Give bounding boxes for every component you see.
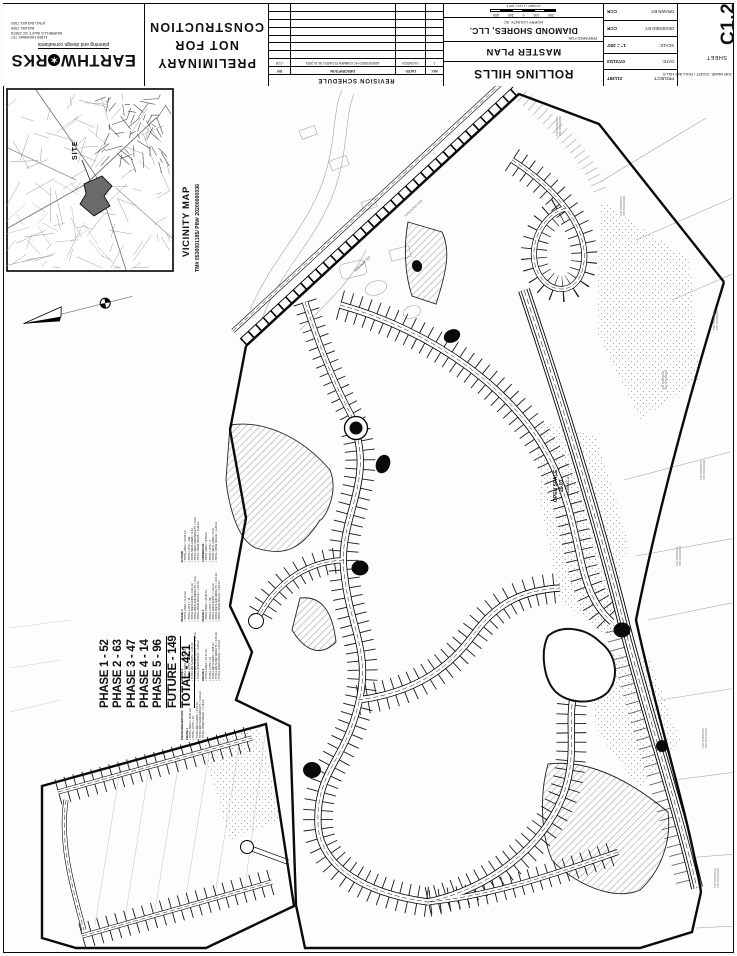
railroad-corridor (233, 84, 519, 345)
firm-name-left: EARTHW (60, 50, 135, 69)
phase-line: PHASE 4 - 14 (139, 636, 152, 708)
sheet-word: SHEET (706, 54, 727, 60)
preliminary-stamp: PRELIMINARY NOT FOR CONSTRUCTION (144, 4, 268, 86)
firm-logo: EARTHW✶RKS (11, 50, 136, 69)
revision-empty-row (269, 42, 443, 50)
revision-empty-row (269, 27, 443, 35)
plan-sheet: VICINITY MAP TM# 0530001185/ PIN# 202000… (0, 0, 737, 956)
adjacent-owner-label: TM# 0530000000PIN# 0000000000 (556, 116, 563, 136)
designed-by-value: CCR (607, 26, 617, 31)
open-space-label: OPEN SPACE 20.03 18.68 AC ± (553, 470, 570, 502)
breakdown-section: PHASE 2• TOTAL AREA = 18.94 AC• TOTAL LO… (181, 627, 201, 681)
scale-tick: 0 (523, 14, 525, 18)
phase-line: PHASE 5 - 96 (152, 636, 165, 708)
adjacent-owner-label: TM# 0530000000PIN# 0000000000 (620, 196, 627, 216)
plan-type: MASTER PLAN (486, 46, 561, 57)
graphic-scale: 200 100 0 200 400 ( IN FEET ) 1 inch = 2… (444, 4, 603, 18)
site-label: SITE (72, 140, 79, 160)
rev-by: CCR (269, 59, 290, 66)
phase-line-future: FUTURE - 149 (166, 636, 180, 708)
revision-empty-row (269, 19, 443, 27)
project-title-cell: ROLLING HILLS MASTER PLAN PREPARED FOR: … (443, 4, 603, 86)
adjacent-owner-label: TM# 0530000000PIN# 0000000000 (713, 310, 720, 330)
breakdown-section: PHASE 3• TOTAL AREA = 15.27 AC• TOTAL LO… (202, 627, 222, 681)
job-name: JOB NAME: 21139T / ROLLING HILLS (604, 72, 732, 77)
col-by: BY (269, 67, 290, 74)
road-casings (58, 160, 618, 936)
col-no: NO. (425, 67, 443, 74)
revision-schedule-title: REVISION SCHEDULE (269, 74, 443, 86)
breakdown-section: FUTURE• TOTAL AREA = 53.04 AC• TOTAL LOT… (181, 508, 201, 562)
client-name: DIAMOND SHORES, LLC. (469, 26, 577, 36)
scale-bar (491, 9, 557, 13)
open-space-area: 18.68 AC ± (566, 470, 571, 502)
road-centerlines (58, 160, 618, 936)
date-label: DATE: (662, 59, 674, 64)
phase-breakdown-notes: PHASE BREAKDOWN:PHASE 1• TOTAL AREA = 16… (181, 508, 239, 740)
road-surfaces (58, 160, 618, 936)
adjacent-owner-label: TM# 0530000000PIN# 0000000000 (676, 546, 683, 566)
globe-icon: ✶ (48, 54, 60, 66)
designed-by-label: DESIGNED BY: (644, 26, 674, 31)
revision-row: 1 01/29/2024 ADDRESSED HC COMMENTS DATED… (269, 58, 443, 66)
prepared-for-label: PREPARED FOR: (568, 36, 597, 40)
adjacent-owner-label: TM# 0530000000PIN# 0000000000 (662, 370, 669, 390)
revision-empty-row (269, 35, 443, 43)
scale-value: 1" = 200' (607, 43, 626, 48)
col-date: DATE: (395, 67, 425, 74)
scale-tick: 200 (508, 14, 514, 18)
revision-empty-row (269, 50, 443, 58)
county: HORRY COUNTY, SC (504, 20, 544, 25)
adjacent-owner-label: TM# 0530000000PIN# 0000000000 (700, 460, 707, 480)
breakdown-section: COMMERCIAL• TOTAL AREA = 8.55 AC• TOTAL … (202, 508, 218, 562)
sheet-number: C1.2 (718, 3, 737, 45)
col-description: DESCRIPTION (290, 67, 395, 74)
firm-tagline: planning and design consultants (38, 41, 109, 49)
revision-schedule: REVISION SCHEDULE NO. DATE: DESCRIPTION … (268, 4, 443, 86)
revision-empty-row (269, 11, 443, 19)
phase-line: PHASE 3 - 47 (126, 636, 139, 708)
scale-tick: 400 (493, 14, 499, 18)
rev-date: 01/29/2024 (395, 59, 425, 66)
stamp-line: PRELIMINARY (157, 56, 256, 70)
breakdown-section: PHASE 5• TOTAL AREA = 24.60 AC• TOTAL LO… (202, 567, 222, 621)
drawn-by-label: DRAWN BY: (651, 9, 674, 14)
breakdown-section: PHASE 1• TOTAL AREA = 16.51 AC• TOTAL LO… (186, 686, 206, 740)
pond-outline (544, 629, 615, 702)
phase-line: PHASE 1 - 52 (99, 636, 112, 708)
firm-name-right: RKS (11, 50, 47, 69)
north-arrow-icon (18, 284, 138, 332)
project-name: ROLLING HILLS (474, 67, 574, 81)
stamp-line: NOT FOR (174, 38, 239, 52)
adjacent-owner-label: TM# 0530000000PIN# 0000000000 (702, 728, 709, 748)
scale-note: ( IN FEET ) 1 inch = 200 ft. (506, 4, 542, 8)
revision-header-row: NO. DATE: DESCRIPTION BY (269, 66, 443, 74)
breakdown-section: PHASE 4• TOTAL AREA = 6.12 AC• TOTAL LOT… (181, 567, 201, 621)
vicinity-map-parcel-id: TM# 0530001185/ PIN# 20200000036 (195, 184, 201, 272)
firm-address: 11855 HIGHWAY 707 MURRELLS INLET, SC 295… (11, 21, 62, 40)
rev-no: 1 (425, 59, 443, 66)
scale-label: SCALE: (659, 43, 674, 48)
rev-description: ADDRESSED HC COMMENTS DATED 09-19-2023 (290, 59, 395, 66)
adjacent-owner-label: TM# 0530000000PIN# 0000000000 (714, 868, 721, 888)
vicinity-map-title: VICINITY MAP (181, 186, 192, 257)
phase-line: PHASE 2 - 63 (112, 636, 125, 708)
scale-tick: 200 (548, 14, 554, 18)
firm-logo-cell: EARTHW✶RKS planning and design consultan… (3, 4, 144, 86)
stamp-line: CONSTRUCTION (149, 20, 264, 34)
revision-empty-row (269, 4, 443, 11)
scale-tick: 100 (533, 14, 539, 18)
drawn-by-value: CCR (607, 9, 617, 14)
date-value: 07/31/23 (607, 59, 625, 64)
vicinity-map (6, 88, 174, 272)
